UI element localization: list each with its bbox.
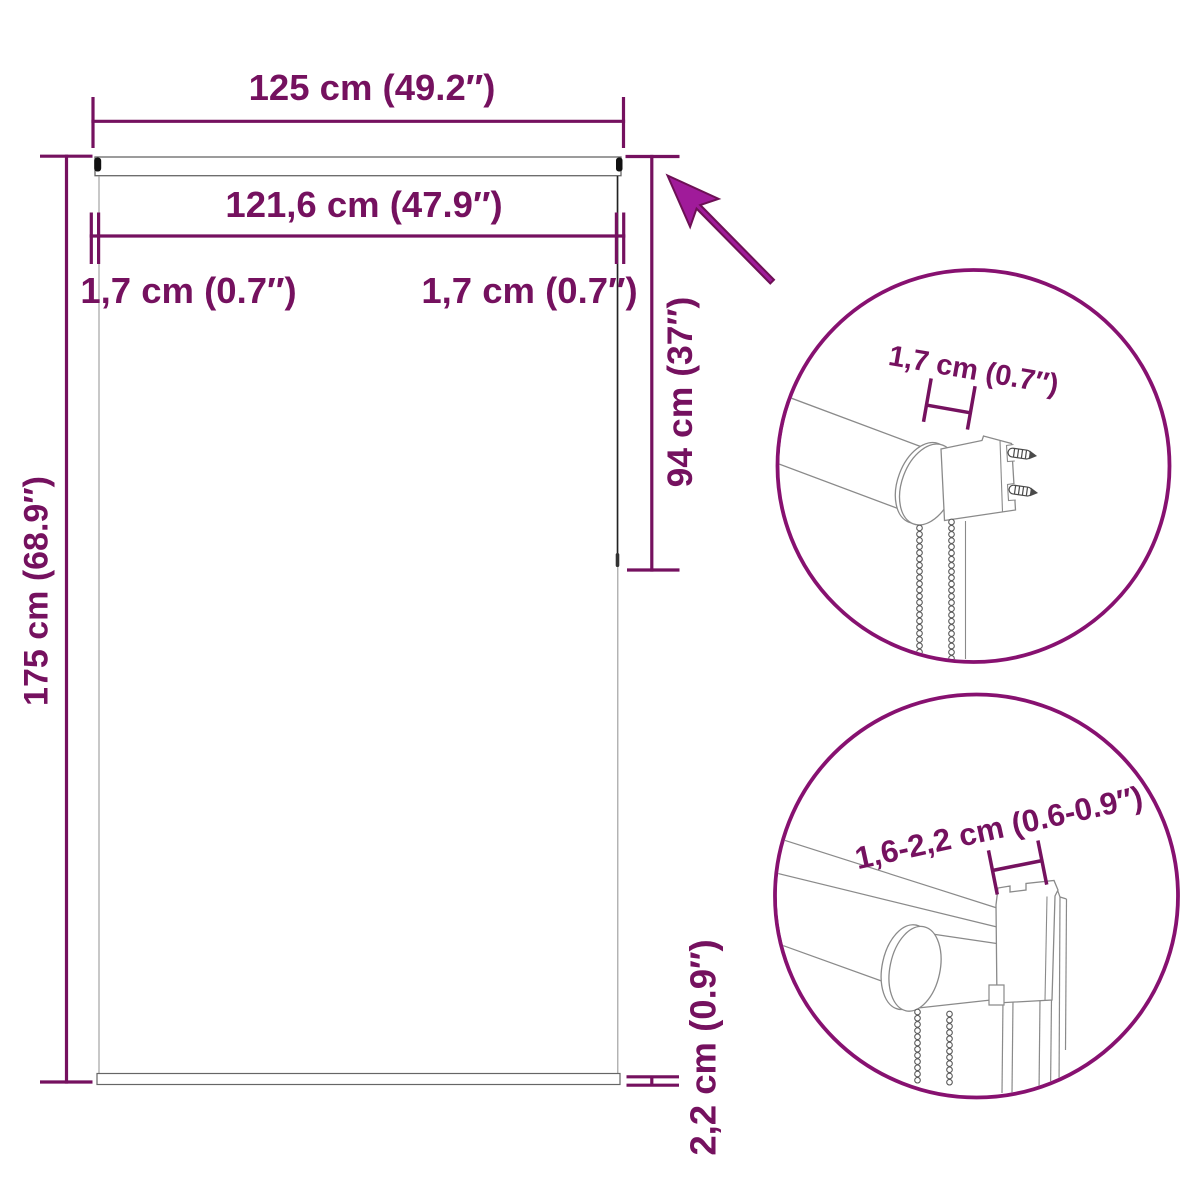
svg-text:94 cm (37″): 94 cm (37″) <box>660 297 700 488</box>
svg-text:125 cm (49.2″): 125 cm (49.2″) <box>249 67 496 108</box>
svg-text:175 cm (68.9″): 175 cm (68.9″) <box>18 476 56 706</box>
svg-text:121,6 cm (47.9″): 121,6 cm (47.9″) <box>225 184 502 225</box>
svg-text:2,2 cm (0.9″): 2,2 cm (0.9″) <box>683 939 724 1155</box>
svg-text:1,7 cm (0.7″): 1,7 cm (0.7″) <box>80 270 296 311</box>
svg-text:1,7 cm (0.7″): 1,7 cm (0.7″) <box>421 270 637 311</box>
